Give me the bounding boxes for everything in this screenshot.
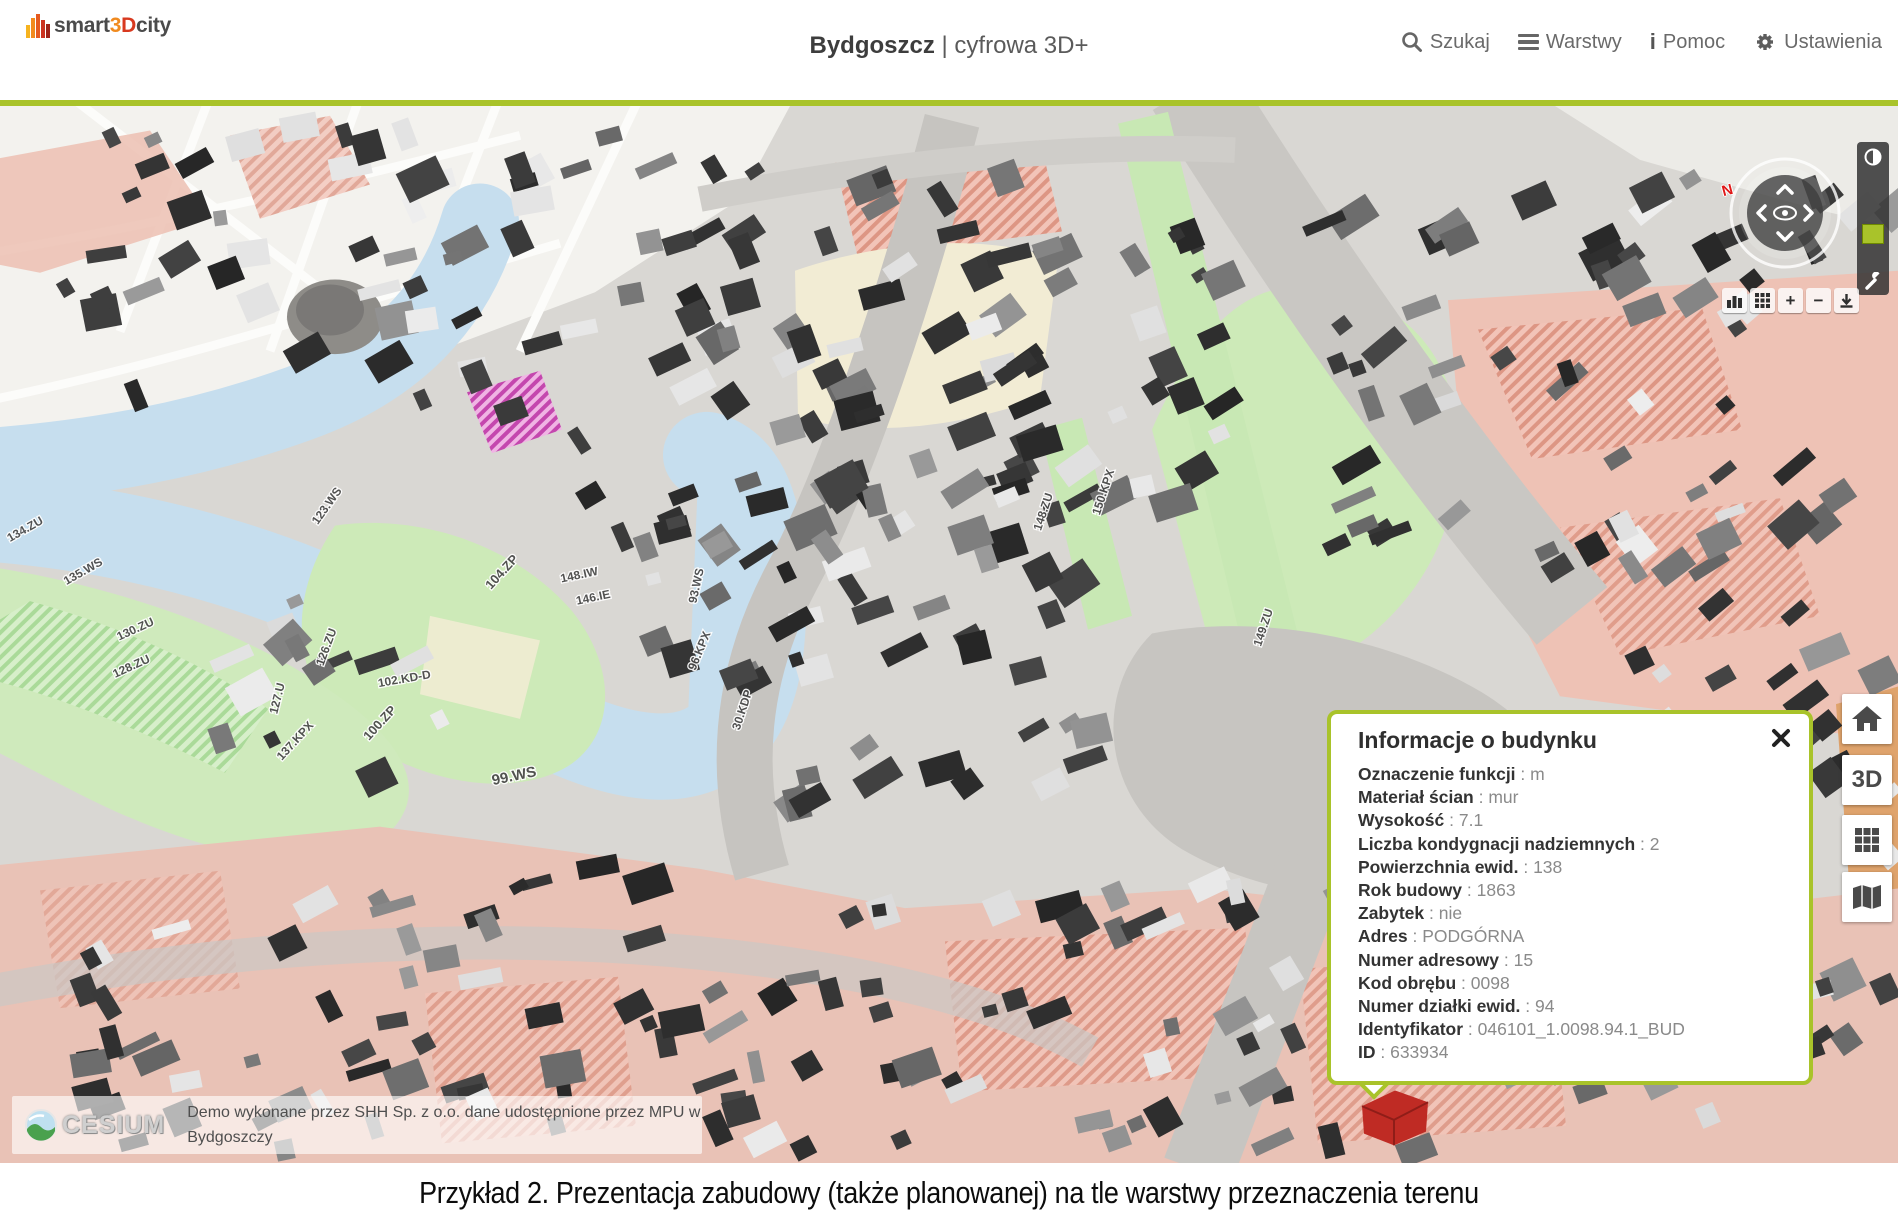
- info-row: Wysokość : 7.1: [1358, 809, 1785, 832]
- cesium-wordmark: CESIUM: [62, 1111, 165, 1140]
- main-nav: Szukaj Warstwy i Pomoc Ustawienia: [1401, 30, 1882, 54]
- info-row: Numer adresowy : 15: [1358, 949, 1785, 972]
- home-button[interactable]: [1842, 694, 1892, 744]
- info-row: Numer działki ewid. : 94: [1358, 995, 1785, 1018]
- grid-icon: [1853, 826, 1881, 854]
- attribution-bar: CESIUM Demo wykonane przez SHH Sp. z o.o…: [12, 1096, 702, 1154]
- help-button[interactable]: i Pomoc: [1650, 31, 1725, 54]
- info-rows: Oznaczenie funkcji : mMateriał ścian : m…: [1358, 763, 1785, 1065]
- close-button[interactable]: [1771, 728, 1791, 753]
- figure-caption: Przykład 2. Prezentacja zabudowy (także …: [419, 1175, 1479, 1211]
- buildings-icon: [1726, 292, 1743, 309]
- search-button[interactable]: Szukaj: [1401, 31, 1490, 54]
- zoom-in-button[interactable]: +: [1778, 288, 1803, 313]
- popup-title: Informacje o budynku: [1358, 727, 1785, 754]
- wrench-icon[interactable]: [1864, 272, 1882, 290]
- buildings-button[interactable]: [1722, 288, 1747, 313]
- map-button[interactable]: [1842, 872, 1892, 922]
- download-button[interactable]: [1834, 288, 1859, 313]
- info-row: Kod obrębu : 0098: [1358, 972, 1785, 995]
- minus-icon: −: [1814, 291, 1824, 311]
- info-row: Materiał ścian : mur: [1358, 786, 1785, 809]
- building-info-popup: Informacje o budynku Oznaczenie funkcji …: [1327, 710, 1813, 1085]
- map-top-border: [0, 100, 1898, 106]
- info-row: ID : 633934: [1358, 1041, 1785, 1064]
- info-row: Zabytek : nie: [1358, 902, 1785, 925]
- caption-bar: Przykład 2. Prezentacja zabudowy (także …: [0, 1163, 1898, 1228]
- info-row: Liczba kondygnacji nadziemnych : 2: [1358, 833, 1785, 856]
- zoom-out-button[interactable]: −: [1806, 288, 1831, 313]
- close-icon: [1771, 728, 1791, 748]
- info-row: Identyfikator : 046101_1.0098.94.1_BUD: [1358, 1018, 1785, 1041]
- info-row: Adres : PODGÓRNA: [1358, 925, 1785, 948]
- title-suffix: | cyfrowa 3D+: [942, 32, 1089, 59]
- layers-icon: [1518, 31, 1539, 54]
- map-icon: [1851, 883, 1883, 911]
- info-row: Rok budowy : 1863: [1358, 879, 1785, 902]
- home-icon: [1851, 704, 1883, 734]
- download-icon: [1838, 292, 1855, 309]
- app-header: smart3Dcity Bydgoszcz | cyfrowa 3D+ Szuk…: [0, 0, 1898, 100]
- map-toolbar: + −: [1722, 288, 1859, 313]
- view-3d-label: 3D: [1852, 766, 1883, 794]
- info-icon: i: [1650, 32, 1656, 52]
- cesium-logo[interactable]: CESIUM: [24, 1108, 165, 1142]
- info-row: Oznaczenie funkcji : m: [1358, 763, 1785, 786]
- info-row: Powierzchnia ewid. : 138: [1358, 856, 1785, 879]
- contrast-icon[interactable]: [1863, 147, 1883, 167]
- search-icon: [1401, 31, 1423, 53]
- slider-handle[interactable]: [1862, 224, 1884, 244]
- layers-button[interactable]: Warstwy: [1518, 31, 1622, 54]
- height-slider[interactable]: [1857, 142, 1889, 295]
- cesium-globe-icon: [24, 1108, 58, 1142]
- attribution-text: Demo wykonane przez SHH Sp. z o.o. dane …: [187, 1100, 700, 1150]
- settings-button[interactable]: Ustawienia: [1753, 30, 1882, 54]
- viewer-page: smart3Dcity Bydgoszcz | cyfrowa 3D+ Szuk…: [0, 0, 1898, 1228]
- gear-icon: [1753, 30, 1777, 54]
- tile-grid-button[interactable]: [1750, 288, 1775, 313]
- grid-icon: [1754, 292, 1771, 309]
- title-city: Bydgoszcz: [810, 32, 935, 59]
- tiles-button[interactable]: [1842, 815, 1892, 865]
- compass-widget[interactable]: [1725, 153, 1845, 273]
- plus-icon: +: [1786, 291, 1796, 311]
- view-3d-button[interactable]: 3D: [1842, 755, 1892, 805]
